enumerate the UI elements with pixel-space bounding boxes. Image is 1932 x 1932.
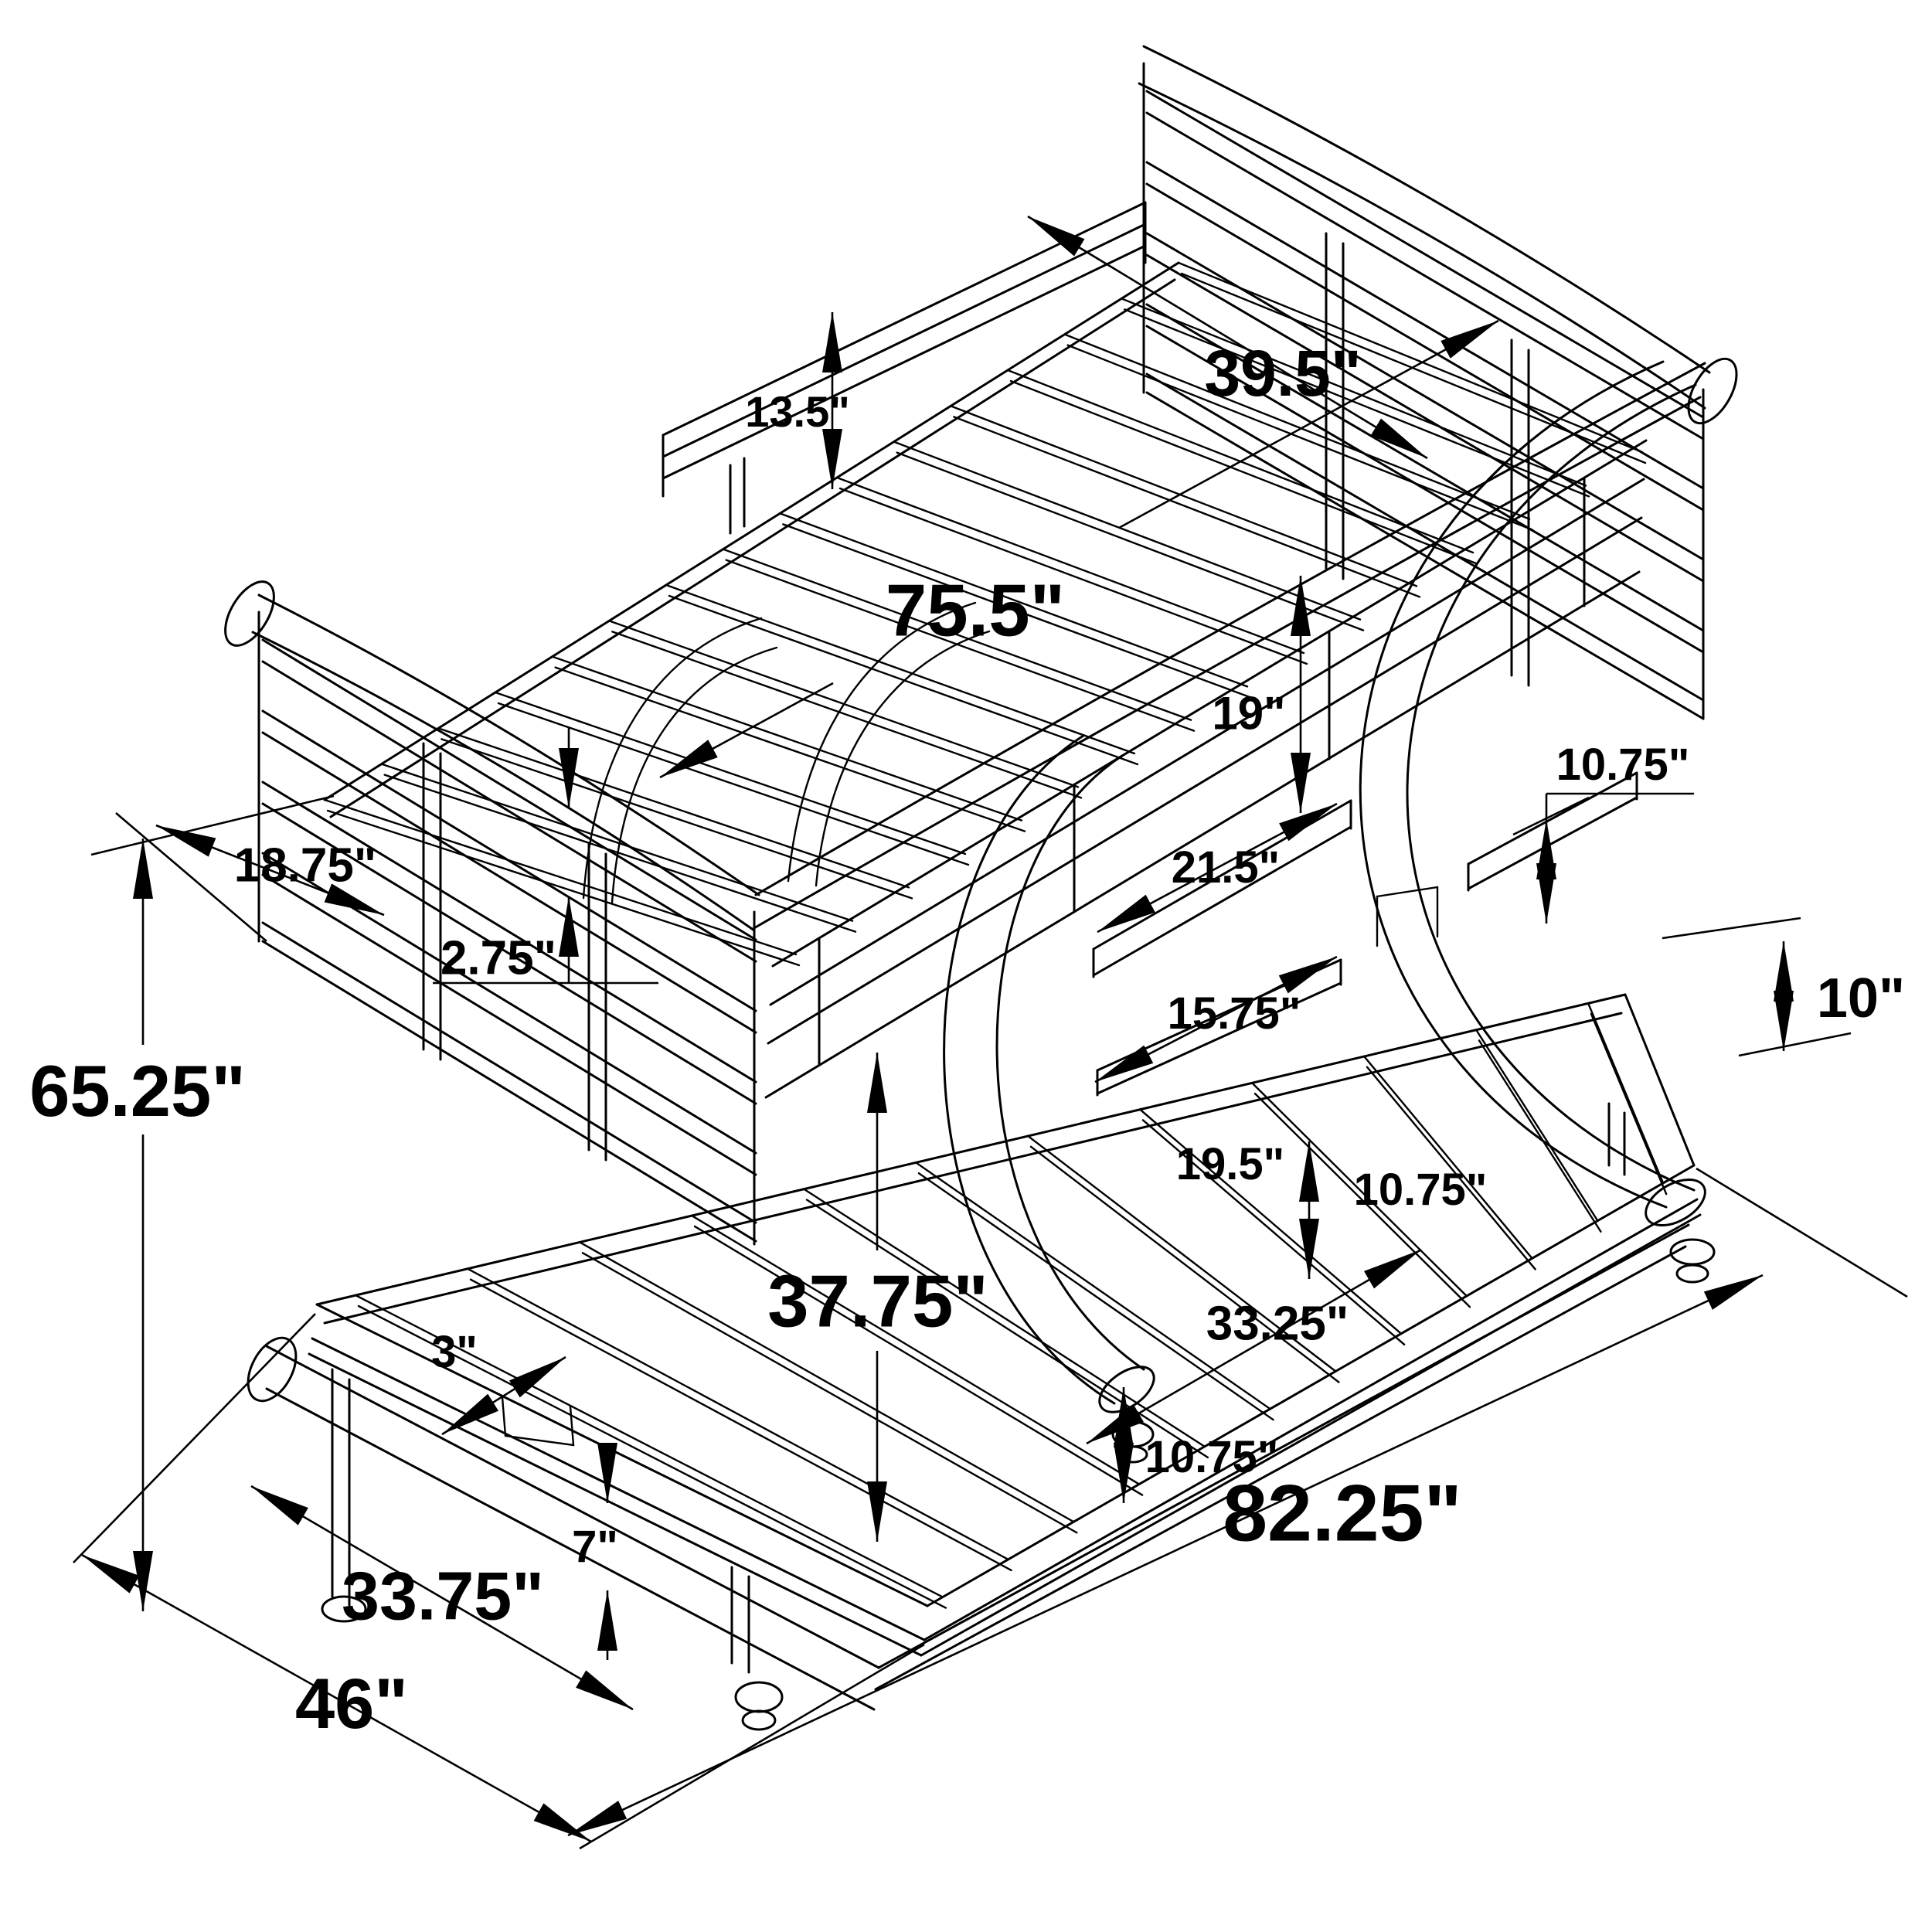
dimension-arrowhead	[822, 312, 842, 372]
dimension-arrowhead	[442, 1394, 498, 1434]
dim-label-runner-3375: 33.75"	[342, 1558, 544, 1634]
dimension-arrowhead	[82, 1555, 139, 1594]
top-slat	[441, 739, 912, 898]
dimension-arrowhead	[156, 825, 216, 857]
dimension-guardrail-height: 13.5"	[745, 312, 850, 489]
dimension-line	[580, 1645, 924, 1849]
bed-structure	[216, 46, 1747, 1730]
footboard-cap	[1679, 351, 1747, 431]
dimension-arrowhead	[559, 896, 579, 957]
dimension-arrowhead	[251, 1486, 308, 1526]
dimension-arrowhead	[559, 748, 579, 808]
dimension-arrowhead	[1279, 804, 1337, 841]
dim-label-base-gap-7: 7"	[572, 1522, 618, 1572]
headboard-panel	[216, 573, 759, 1244]
dim-label-headboard-1875: 18.75"	[234, 838, 377, 892]
dim-label-rail-drop-19: 19"	[1212, 688, 1285, 740]
dim-label-upper-step-215: 21.5"	[1172, 842, 1280, 893]
dim-label-step-drop-1075: 10.75"	[1556, 740, 1690, 790]
dimension-arrowhead	[1114, 1443, 1134, 1503]
dimension-arrowhead	[597, 1590, 617, 1651]
dim-label-overall-width: 46"	[295, 1665, 408, 1743]
base-runner-cap	[238, 1330, 305, 1409]
dim-label-overall-length: 82.25"	[1223, 1468, 1462, 1558]
dim-label-handle-3: 3"	[431, 1327, 478, 1377]
dim-label-top-bunk-length: 75.5"	[886, 570, 1065, 652]
futon-deck-slats	[355, 1003, 1666, 1608]
futon-slat	[1479, 1040, 1600, 1231]
dimension-step-drop-1075: 10.75"	[1513, 740, 1694, 923]
dimension-arrowhead	[1704, 1275, 1763, 1310]
bunk-bed-dimension-drawing: 13.5"39.5"75.5"19"10.75"18.75"21.5"2.75"…	[0, 0, 1932, 1932]
dim-label-top-bunk-width: 39.5"	[1204, 337, 1361, 410]
dimension-mid-step-1575: 15.75"	[1095, 957, 1337, 1082]
dimension-arrowhead	[576, 1670, 633, 1709]
dimension-mid-offset-1075: 10.75"	[1354, 1165, 1488, 1215]
diagram-page: 13.5"39.5"75.5"19"10.75"18.75"21.5"2.75"…	[0, 0, 1932, 1932]
dim-label-mid-offset-1075: 10.75"	[1354, 1165, 1488, 1215]
dimension-arrowhead	[1364, 1250, 1421, 1288]
dim-label-rail-gap-275: 2.75"	[440, 931, 556, 985]
dimension-arrowhead	[509, 1357, 566, 1397]
dimension-arrowhead	[597, 1443, 617, 1503]
dimension-arrowhead	[1291, 576, 1311, 636]
dimension-line	[1696, 1168, 1907, 1297]
top-slat	[951, 406, 1417, 586]
dim-label-futon-3325: 33.25"	[1206, 1297, 1349, 1350]
top-slat	[612, 631, 1081, 798]
dimension-arrowhead	[822, 429, 842, 489]
dimension-arrowhead	[133, 838, 153, 899]
dimension-arrowhead	[534, 1803, 591, 1842]
dimension-arrowhead	[1095, 1046, 1153, 1082]
dimension-overall-height: 65.25"	[29, 796, 334, 1611]
dim-label-guardrail-height: 13.5"	[745, 387, 850, 436]
dimension-arrowhead	[1097, 895, 1155, 932]
dimension-arrowhead	[1028, 216, 1084, 257]
dim-label-step-deck-195: 19.5"	[1176, 1139, 1284, 1189]
dimension-arrowhead	[1536, 863, 1556, 923]
base-mid-caster	[736, 1682, 782, 1712]
dimension-line	[73, 1314, 315, 1563]
dim-label-base-end-10: 10"	[1817, 968, 1905, 1029]
dimension-rail-drop-19: 19"	[1212, 576, 1311, 813]
dimension-base-end-10: 10"	[1662, 918, 1905, 1056]
futon-deck	[309, 995, 1700, 1655]
dim-label-overall-height: 65.25"	[29, 1050, 246, 1131]
futon-slat	[692, 1216, 1139, 1485]
dimension-arrowhead	[660, 740, 718, 777]
dimension-line	[1662, 918, 1801, 938]
dimension-arrowhead	[1299, 1141, 1319, 1202]
top-slat	[438, 728, 909, 887]
dimension-arrowhead	[867, 1053, 887, 1113]
dimension-arrowhead	[867, 1481, 887, 1542]
futon-slat	[1591, 1014, 1666, 1194]
dimension-arrowhead	[1774, 991, 1794, 1051]
dimension-arrowhead	[1291, 753, 1311, 813]
base-mid-caster-wheel	[743, 1711, 775, 1730]
dimension-annotations: 13.5"39.5"75.5"19"10.75"18.75"21.5"2.75"…	[29, 216, 1907, 1849]
right-c-caster-wheel	[1677, 1265, 1708, 1282]
dimension-futon-3325: 33.25"	[1087, 1250, 1421, 1444]
dimension-line	[1739, 1033, 1851, 1056]
left-c-leg	[944, 736, 1162, 1462]
dimension-line	[568, 1275, 1763, 1835]
right-c-foot-cap	[1638, 1170, 1713, 1235]
dim-label-bunk-clearance: 37.75"	[767, 1260, 988, 1343]
dimension-base-gap-7: 7"	[572, 1443, 618, 1660]
dimension-arrowhead	[1087, 1405, 1144, 1444]
dim-label-mid-step-1575: 15.75"	[1168, 988, 1301, 1039]
dimension-bunk-clearance: 37.75"	[767, 1053, 988, 1542]
